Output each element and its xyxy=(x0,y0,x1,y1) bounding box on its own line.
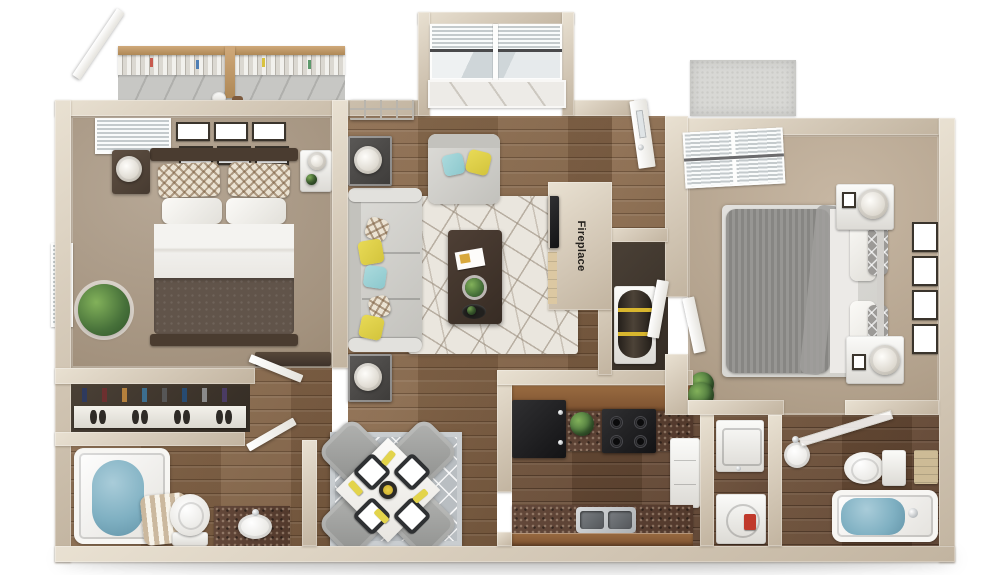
dining-centerpiece-flowers xyxy=(383,485,393,495)
wall-kitchen-top xyxy=(497,370,693,385)
side-table-lamp-bottom xyxy=(354,363,382,391)
picture-frame xyxy=(912,290,938,320)
detergent-bottle xyxy=(744,514,756,530)
hall-toilet-bowl xyxy=(170,494,210,536)
guest-bath-faucet xyxy=(792,436,799,443)
wall-guestroom-south-right xyxy=(845,400,939,415)
guest-toilet-tank xyxy=(882,450,906,486)
picture-frame xyxy=(912,256,938,286)
cabinet-panel-line xyxy=(674,484,696,485)
shoe xyxy=(99,410,106,424)
stove xyxy=(602,409,656,453)
picture-frame xyxy=(214,122,248,141)
wall-master-living xyxy=(332,100,348,368)
hanging-garment xyxy=(162,388,167,402)
picture-frame xyxy=(912,222,938,252)
master-pillow xyxy=(162,198,222,224)
entry-door-lite xyxy=(636,110,647,139)
sink-basin-left xyxy=(580,511,604,529)
master-accent-pillow xyxy=(157,162,220,198)
guest-lamp-bottom xyxy=(870,345,900,375)
closet-shoe-shelf xyxy=(74,406,246,428)
sofa-armrest-bottom xyxy=(348,338,422,352)
shoe xyxy=(225,410,232,424)
entry-concrete-pad xyxy=(690,60,796,116)
master-lamp-right xyxy=(308,152,326,170)
fireplace-tv xyxy=(548,196,559,248)
armchair-backrest xyxy=(428,134,500,148)
picture-frame xyxy=(252,122,286,141)
kitchen-lower-cabinets xyxy=(512,533,693,546)
shoe xyxy=(141,410,148,424)
wall-closet-bath xyxy=(55,432,245,446)
guest-bathtub-water xyxy=(841,498,905,535)
wall-guestroom-south-left xyxy=(688,400,784,415)
stove-burner xyxy=(634,416,647,429)
stove-burner xyxy=(634,435,647,448)
shoe xyxy=(216,410,223,424)
side-table-lamp-top xyxy=(354,146,382,174)
wall-bath-dining xyxy=(302,440,317,546)
picture-frame xyxy=(176,122,210,141)
shoe xyxy=(183,410,190,424)
wall-galley-lower xyxy=(497,532,512,546)
guest-bedroom-window xyxy=(683,127,786,188)
floor-plan: Fireplace xyxy=(0,0,1000,575)
master-potted-plant xyxy=(78,284,130,336)
kitchen-sink xyxy=(576,507,636,533)
wall-hall-guestroom-lower xyxy=(665,354,688,415)
decor-bowl-greens xyxy=(467,306,476,315)
coffee-table xyxy=(448,230,502,324)
master-blanket xyxy=(154,278,294,334)
balcony-railing-speck-2 xyxy=(196,60,199,69)
bay-wall-top xyxy=(418,12,574,24)
sofa-pillow-teal xyxy=(363,265,388,290)
guest-wall-frames xyxy=(912,222,938,354)
hall-bath-faucet xyxy=(252,509,259,516)
wall-galley-upper xyxy=(497,370,512,492)
fireplace-hearth-tile xyxy=(548,252,557,304)
master-footboard xyxy=(150,334,298,346)
kitchen-white-cabinet xyxy=(670,438,700,508)
hall-toilet-seat xyxy=(178,502,204,530)
sofa-pillow-yellow xyxy=(358,314,385,341)
closet-hanging-clothes xyxy=(74,386,246,404)
hall-bathtub-water xyxy=(92,460,144,536)
guest-toilet-seat xyxy=(851,458,879,482)
balcony-railing-speck-4 xyxy=(308,60,311,69)
hanging-garment xyxy=(122,388,127,402)
magazine-cover-stripe xyxy=(459,253,470,264)
master-bed xyxy=(150,148,298,346)
shoe xyxy=(174,410,181,424)
sofa-armrest-top xyxy=(348,188,422,202)
water-heater-strap xyxy=(618,308,652,312)
master-sheet xyxy=(154,224,294,280)
guest-lamp-top xyxy=(858,189,888,219)
refrigerator-handle xyxy=(558,440,563,445)
guest-bath-towel xyxy=(914,450,938,484)
stove-burner xyxy=(610,435,623,448)
sink-basin-right xyxy=(608,511,632,529)
refrigerator xyxy=(512,400,566,458)
coffee-table-plant xyxy=(465,278,484,297)
washer-knob xyxy=(736,466,741,471)
hanging-garment xyxy=(182,388,187,402)
balcony-roof-beam xyxy=(72,8,124,79)
shoe xyxy=(90,410,97,424)
guest-nightstand-photo xyxy=(852,354,866,370)
water-heater xyxy=(618,290,652,358)
balcony-patio-door xyxy=(350,100,414,120)
guest-toilet-bowl xyxy=(844,452,884,484)
entry-door-handle xyxy=(637,144,644,151)
hanging-garment xyxy=(202,388,207,402)
wall-kitchen-laundry xyxy=(700,415,714,546)
hanging-garment xyxy=(222,388,227,402)
bay-window-mullion xyxy=(493,24,498,80)
guest-tub-faucet xyxy=(908,508,918,518)
kitchen-counter-plant xyxy=(570,412,594,436)
armchair-pillow-teal xyxy=(441,152,466,177)
balcony-railing-speck-1 xyxy=(150,58,153,67)
cabinet-panel-line xyxy=(674,460,696,461)
wall-laundry-bath xyxy=(768,415,782,546)
master-lamp-left xyxy=(116,156,142,182)
hall-bath-sink xyxy=(238,514,272,539)
shoe xyxy=(132,410,139,424)
wall-top-center xyxy=(568,100,634,116)
wall-left xyxy=(55,100,71,562)
master-pillow xyxy=(226,198,286,224)
guest-nightstand-photo xyxy=(842,192,856,208)
stove-burner xyxy=(610,416,623,429)
washer xyxy=(716,420,764,472)
sofa-pillow-yellow xyxy=(357,238,385,266)
living-bay-window xyxy=(430,24,562,80)
hanging-garment xyxy=(82,388,87,402)
wall-bottom xyxy=(55,546,955,562)
wall-right xyxy=(939,118,955,562)
balcony-railing-speck-3 xyxy=(262,58,265,67)
master-accent-pillow xyxy=(227,162,290,198)
guest-bath-sink xyxy=(784,442,810,468)
hanging-garment xyxy=(102,388,107,402)
bay-window-seat xyxy=(428,80,566,108)
refrigerator-handle xyxy=(558,410,563,415)
master-headboard xyxy=(150,148,298,161)
balcony-post xyxy=(225,46,235,98)
fireplace-label: Fireplace xyxy=(573,191,587,301)
master-nightstand-plant xyxy=(306,174,317,185)
wall-master-south xyxy=(55,368,255,384)
hanging-garment xyxy=(142,388,147,402)
dryer xyxy=(716,494,766,544)
picture-frame xyxy=(912,324,938,354)
washer-lid xyxy=(722,428,762,466)
